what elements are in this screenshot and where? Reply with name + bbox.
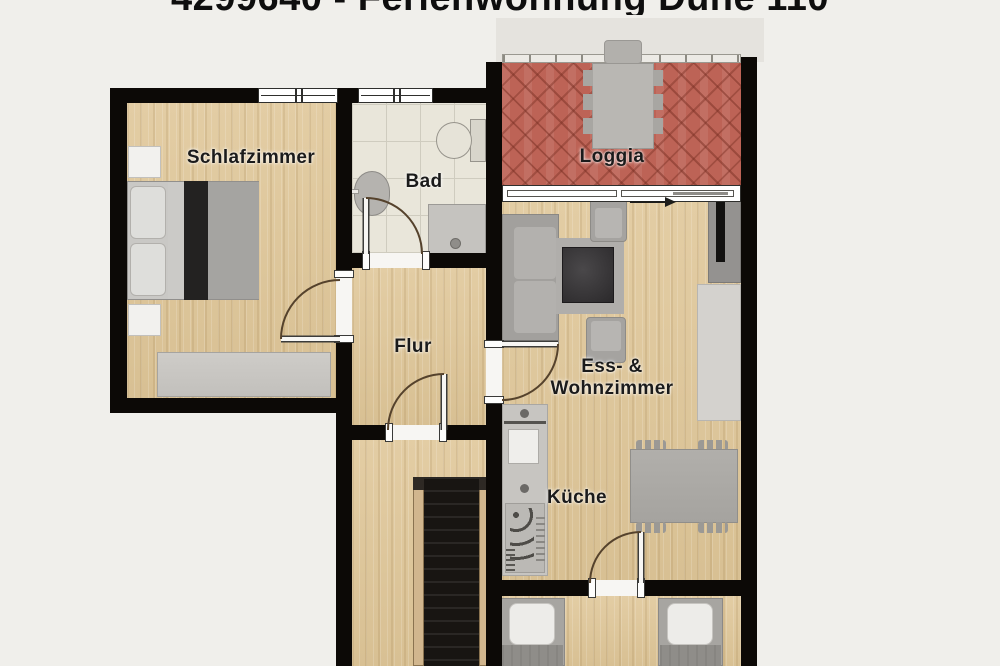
- door-frame: [334, 270, 354, 278]
- tv: [716, 200, 725, 262]
- door-frame: [484, 396, 504, 404]
- door-opening-wohnzimmer: [486, 347, 502, 397]
- wardrobe: [157, 352, 331, 397]
- wall-mid-lower: [336, 343, 352, 666]
- bed-pillow: [509, 603, 555, 645]
- window-frame-line: [261, 95, 335, 96]
- kitchen-sink: [508, 429, 539, 464]
- door-frame: [334, 335, 354, 343]
- bed-blanket: [660, 645, 721, 666]
- wall-kueche-south-left: [502, 580, 588, 596]
- wall-bad-south-right: [430, 253, 486, 268]
- nightstand: [128, 146, 161, 178]
- door-frame: [439, 423, 447, 442]
- wall-schlafzimmer-south: [110, 398, 352, 413]
- balcony-sliding-door: [502, 185, 741, 202]
- stove-vent: [506, 549, 515, 571]
- dining-table: [630, 449, 738, 523]
- bed-blanket: [502, 645, 563, 666]
- loggia-table: [592, 63, 654, 149]
- window-mullion: [295, 89, 297, 102]
- coffee-table: [562, 247, 614, 303]
- door-opening-flur: [392, 425, 440, 440]
- sliding-door-handle: [673, 192, 728, 195]
- wall-east: [741, 57, 757, 666]
- wall-bad-south-left: [352, 253, 362, 268]
- door-opening-bad: [369, 253, 423, 268]
- bed-pillow: [130, 243, 166, 296]
- door-opening-schlafzimmer: [336, 277, 352, 336]
- label-loggia: Loggia: [580, 146, 645, 168]
- bed-duvet: [208, 182, 259, 299]
- page-title-clip: 4299640 - Ferienwohnung Düne 110: [0, 0, 1000, 15]
- wall-mid-upper: [336, 88, 352, 270]
- door-frame: [362, 251, 370, 270]
- staircase-post: [413, 477, 424, 490]
- staircase-stringer: [413, 477, 424, 666]
- window-mullion: [399, 89, 401, 102]
- nightstand: [128, 304, 161, 336]
- label-wohnzimmer-line2: Wohnzimmer: [551, 378, 674, 400]
- armchair-seat: [591, 321, 621, 351]
- sliding-door-panel: [507, 190, 617, 197]
- door-opening-kueche: [595, 580, 638, 596]
- door-frame: [385, 423, 393, 442]
- bed-pillow: [667, 603, 713, 645]
- label-kueche: Küche: [547, 487, 607, 509]
- staircase: [424, 477, 479, 666]
- loggia-chairs-right: [653, 70, 663, 140]
- label-bad: Bad: [405, 171, 442, 193]
- armchair-seat: [595, 208, 622, 238]
- wall-spine-lower: [486, 404, 502, 666]
- label-wohnzimmer: Ess- & Wohnzimmer: [551, 356, 674, 400]
- wall-flur-south-right: [447, 425, 486, 440]
- kitchen-knob: [520, 484, 529, 493]
- wall-west: [110, 88, 127, 413]
- window-bad: [358, 88, 433, 103]
- window-frame-line: [361, 95, 430, 96]
- wall-spine-upper: [486, 62, 502, 340]
- window-mullion: [393, 89, 395, 102]
- shower-drain: [450, 238, 461, 249]
- wall-kueche-south-right: [645, 580, 741, 596]
- page-title: 4299640 - Ferienwohnung Düne 110: [0, 0, 1000, 15]
- bed-sheet: [168, 182, 184, 299]
- cabinet: [697, 284, 741, 421]
- bed-pillow: [130, 186, 166, 239]
- toilet-tank: [470, 119, 486, 162]
- kitchen-divider: [504, 421, 546, 424]
- sofa-cushion: [514, 281, 556, 333]
- wall-flur-south-left: [336, 425, 385, 440]
- sofa-cushion: [514, 227, 556, 279]
- bed-runner: [184, 181, 208, 300]
- loggia-chairs-left: [583, 70, 593, 140]
- label-flur: Flur: [394, 336, 432, 358]
- window-mullion: [301, 89, 303, 102]
- dining-chair: [698, 522, 728, 533]
- label-wohnzimmer-line1: Ess- &: [551, 356, 674, 378]
- dining-chair: [636, 522, 666, 533]
- door-frame: [422, 251, 430, 270]
- door-frame: [484, 340, 504, 348]
- floor-plan: Schlafzimmer Bad Loggia Flur Ess- & Wohn…: [0, 0, 1000, 666]
- toilet-bowl: [436, 122, 472, 159]
- label-schlafzimmer: Schlafzimmer: [187, 147, 315, 169]
- door-frame: [588, 578, 596, 598]
- loggia-chair: [604, 40, 642, 64]
- kitchen-knob: [520, 409, 529, 418]
- door-frame: [637, 578, 645, 598]
- window-schlafzimmer: [258, 88, 338, 103]
- sink: [354, 171, 390, 216]
- dish-rack: [536, 517, 545, 565]
